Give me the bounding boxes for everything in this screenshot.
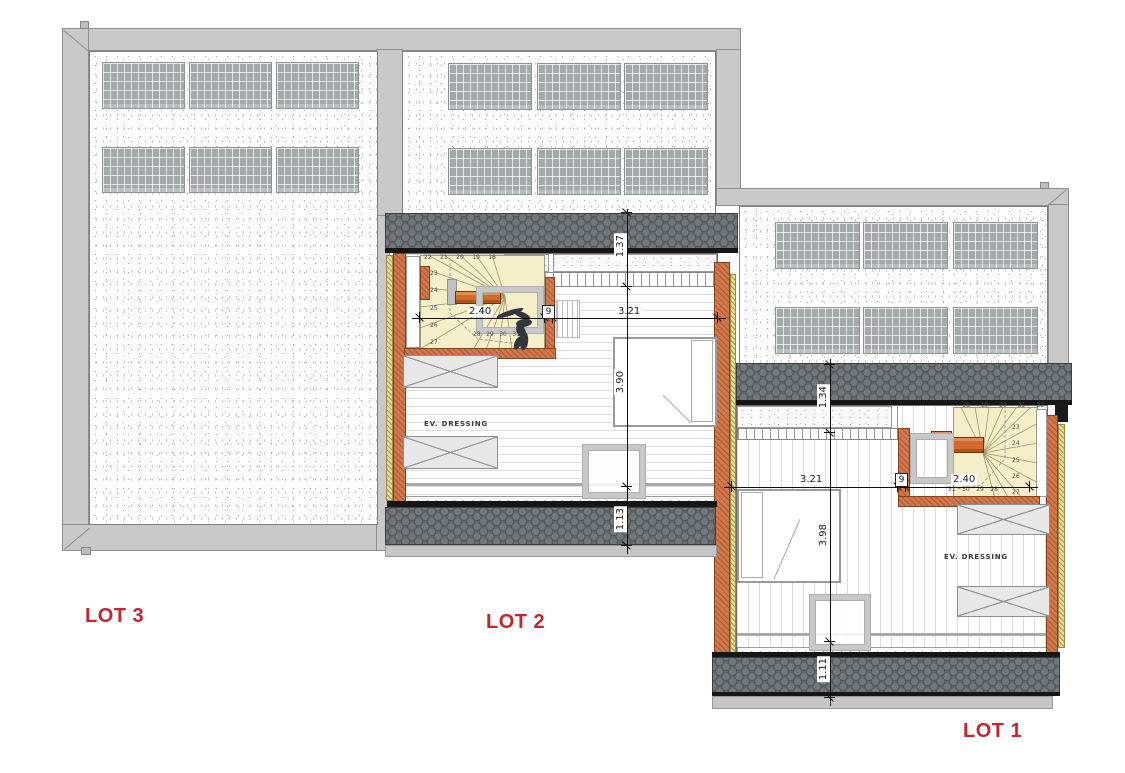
lot1-gutter-band — [712, 696, 1053, 709]
dim-label-room-depth: 3.90 — [614, 369, 627, 395]
lot2-stair-numbers-left: 23 24 25 26 27 — [430, 270, 439, 346]
lot1-right-wall — [1046, 415, 1058, 655]
lot2-ledge-seam — [548, 254, 554, 272]
lot2-floor-edge-line — [404, 483, 717, 486]
wardrobe-symbol — [957, 586, 1050, 617]
dim-tick — [621, 281, 632, 292]
lot1-stair-balustrade — [737, 428, 898, 440]
stair-step-number: 25 — [430, 305, 439, 312]
dim-label-wall: 9 — [895, 473, 908, 487]
floor-plan-canvas: EV. DRESSING 22 21 20 19 18 23 24 25 26 … — [0, 0, 1125, 773]
solar-panel — [537, 63, 621, 110]
bed-fold-line — [663, 395, 691, 423]
parapet-mid-right-band — [716, 49, 741, 190]
lot1-floor-roof-window — [810, 595, 870, 650]
stair-step-number: 20 — [456, 254, 464, 261]
stair-step-number: 29 — [486, 331, 494, 339]
parapet-lot1-right-band — [1048, 204, 1069, 366]
solar-panel — [624, 63, 708, 110]
solar-panel — [102, 62, 185, 109]
lot2-vertical-dim-line — [627, 209, 628, 554]
lot1-right-insulation — [1058, 424, 1065, 648]
survey-marker — [81, 547, 91, 555]
dim-label-room-width: 3.21 — [798, 474, 824, 485]
dim-tick — [712, 312, 723, 323]
lot2-stair-numbers-top: 22 21 20 19 18 — [424, 254, 496, 261]
dim-tick — [414, 312, 425, 323]
solar-panel — [276, 62, 359, 109]
dim-tick — [824, 692, 835, 703]
bed-fold-line — [774, 519, 800, 579]
stair-step-number: 26 — [430, 322, 439, 329]
bed-pillow — [691, 340, 713, 422]
stair-step-number: 20 — [999, 402, 1007, 409]
stair-step-number: 31 — [512, 331, 520, 339]
dim-label-roof-bottom: 1.11 — [817, 656, 830, 682]
lot2-label: LOT 2 — [486, 611, 545, 634]
parapet-top-band — [62, 28, 741, 51]
dim-label-room-depth: 3.98 — [817, 522, 830, 548]
stair-step-number: 21 — [440, 254, 448, 261]
stair-step-number: 22 — [1036, 402, 1044, 409]
lot2-stair-spur-wall — [420, 266, 430, 300]
lot1-ledge-seam — [891, 406, 898, 428]
stair-step-number: 18 — [962, 402, 970, 409]
lot1-label: LOT 1 — [963, 720, 1022, 743]
wardrobe-symbol — [403, 436, 498, 469]
lot1-horizontal-dim-line — [724, 487, 1038, 488]
stair-step-number: 25 — [1012, 457, 1021, 464]
plant-icon — [494, 299, 544, 351]
dim-label-roof-top: 1.34 — [817, 384, 830, 410]
solar-panel — [775, 307, 860, 354]
lot2-stair-stringer — [406, 256, 420, 348]
dim-tick — [621, 207, 632, 218]
dim-label-room-width: 3.21 — [616, 306, 642, 317]
stair-step-number: 19 — [472, 254, 480, 261]
stair-step-number: 22 — [424, 254, 432, 261]
dim-label-stair-width: 2.40 — [951, 474, 977, 485]
dim-label-roof-bottom: 1.13 — [614, 506, 627, 532]
lot1-floor-edge-line — [737, 633, 1047, 636]
parapet-divider-band — [376, 49, 403, 216]
lot1-room-label: EV. DRESSING — [944, 553, 1008, 561]
lot2-tiled-roof-bottom — [385, 507, 716, 545]
dim-tick — [824, 359, 835, 370]
solar-panel — [448, 148, 532, 195]
lot2-horizontal-dim-line — [412, 318, 726, 319]
wardrobe-symbol — [957, 504, 1050, 535]
lot3-label: LOT 3 — [85, 605, 144, 628]
lot2-floor-roof-window — [583, 445, 645, 498]
dim-tick — [824, 636, 835, 647]
dim-tick — [1024, 481, 1035, 492]
solar-panel — [189, 62, 272, 109]
stair-step-number: 28 — [473, 331, 481, 339]
solar-panel — [448, 63, 532, 110]
dim-tick — [726, 481, 737, 492]
lot1-tiled-roof-bottom — [712, 657, 1060, 693]
stair-step-number: 27 — [430, 339, 439, 346]
wardrobe-symbol — [403, 355, 498, 388]
lot2-tiled-roof-top — [385, 213, 738, 250]
solar-panel — [953, 307, 1038, 354]
dim-label-stair-width: 2.40 — [467, 306, 493, 317]
dim-tick — [621, 540, 632, 551]
lot2-stair-numbers-bottom: 28 29 30 31 — [473, 331, 520, 339]
stair-step-number: 30 — [499, 331, 507, 339]
solar-panel — [953, 222, 1038, 269]
stair-step-number: 27 — [1012, 489, 1021, 496]
lot3-flat-roof — [89, 51, 378, 525]
parapet-left-band — [62, 28, 89, 551]
solar-panel — [102, 147, 185, 193]
solar-panel — [624, 148, 708, 195]
stair-step-number: 24 — [430, 287, 439, 294]
solar-panel — [537, 148, 621, 195]
lot2-left-insulation — [386, 255, 393, 501]
stair-step-number: 23 — [430, 270, 439, 277]
lot1-tiled-roof-top — [736, 363, 1072, 401]
stair-step-number: 23 — [1012, 424, 1021, 431]
parapet-lot1-top-band — [716, 188, 1069, 206]
solar-panel — [189, 147, 272, 193]
dim-label-roof-top: 1.37 — [614, 233, 627, 259]
lot1-stair-numbers-top: 18 19 20 21 22 — [962, 402, 1044, 409]
dim-label-wall: 9 — [542, 305, 555, 319]
lot2-bed — [613, 337, 717, 427]
solar-panel — [775, 222, 860, 269]
lot2-gutter-band — [385, 545, 717, 557]
stair-step-number: 19 — [981, 402, 989, 409]
solar-panel — [863, 222, 948, 269]
lot1-stair-handrail — [950, 437, 984, 453]
lot2-room-label: EV. DRESSING — [424, 420, 488, 428]
solar-panel — [863, 307, 948, 354]
lot1-stair-roof-window — [911, 434, 953, 483]
stair-step-number: 26 — [1012, 473, 1021, 480]
stair-step-number: 18 — [488, 254, 496, 261]
dim-tick — [824, 427, 835, 438]
solar-panel — [276, 147, 359, 193]
lot1-stair-numbers-right: 23 24 25 26 27 — [1012, 424, 1021, 496]
lot1-vertical-dim-line — [830, 359, 831, 706]
survey-marker — [1040, 182, 1049, 189]
parapet-bottom-band-lot3 — [62, 524, 391, 551]
stair-step-number: 24 — [1012, 440, 1021, 447]
bed-pillow — [741, 492, 763, 578]
survey-marker — [80, 21, 89, 29]
stair-step-number: 21 — [1018, 402, 1026, 409]
dim-tick — [621, 481, 632, 492]
lot1-stair-stringer — [1036, 409, 1047, 497]
lot2-stair-landing — [556, 300, 580, 338]
